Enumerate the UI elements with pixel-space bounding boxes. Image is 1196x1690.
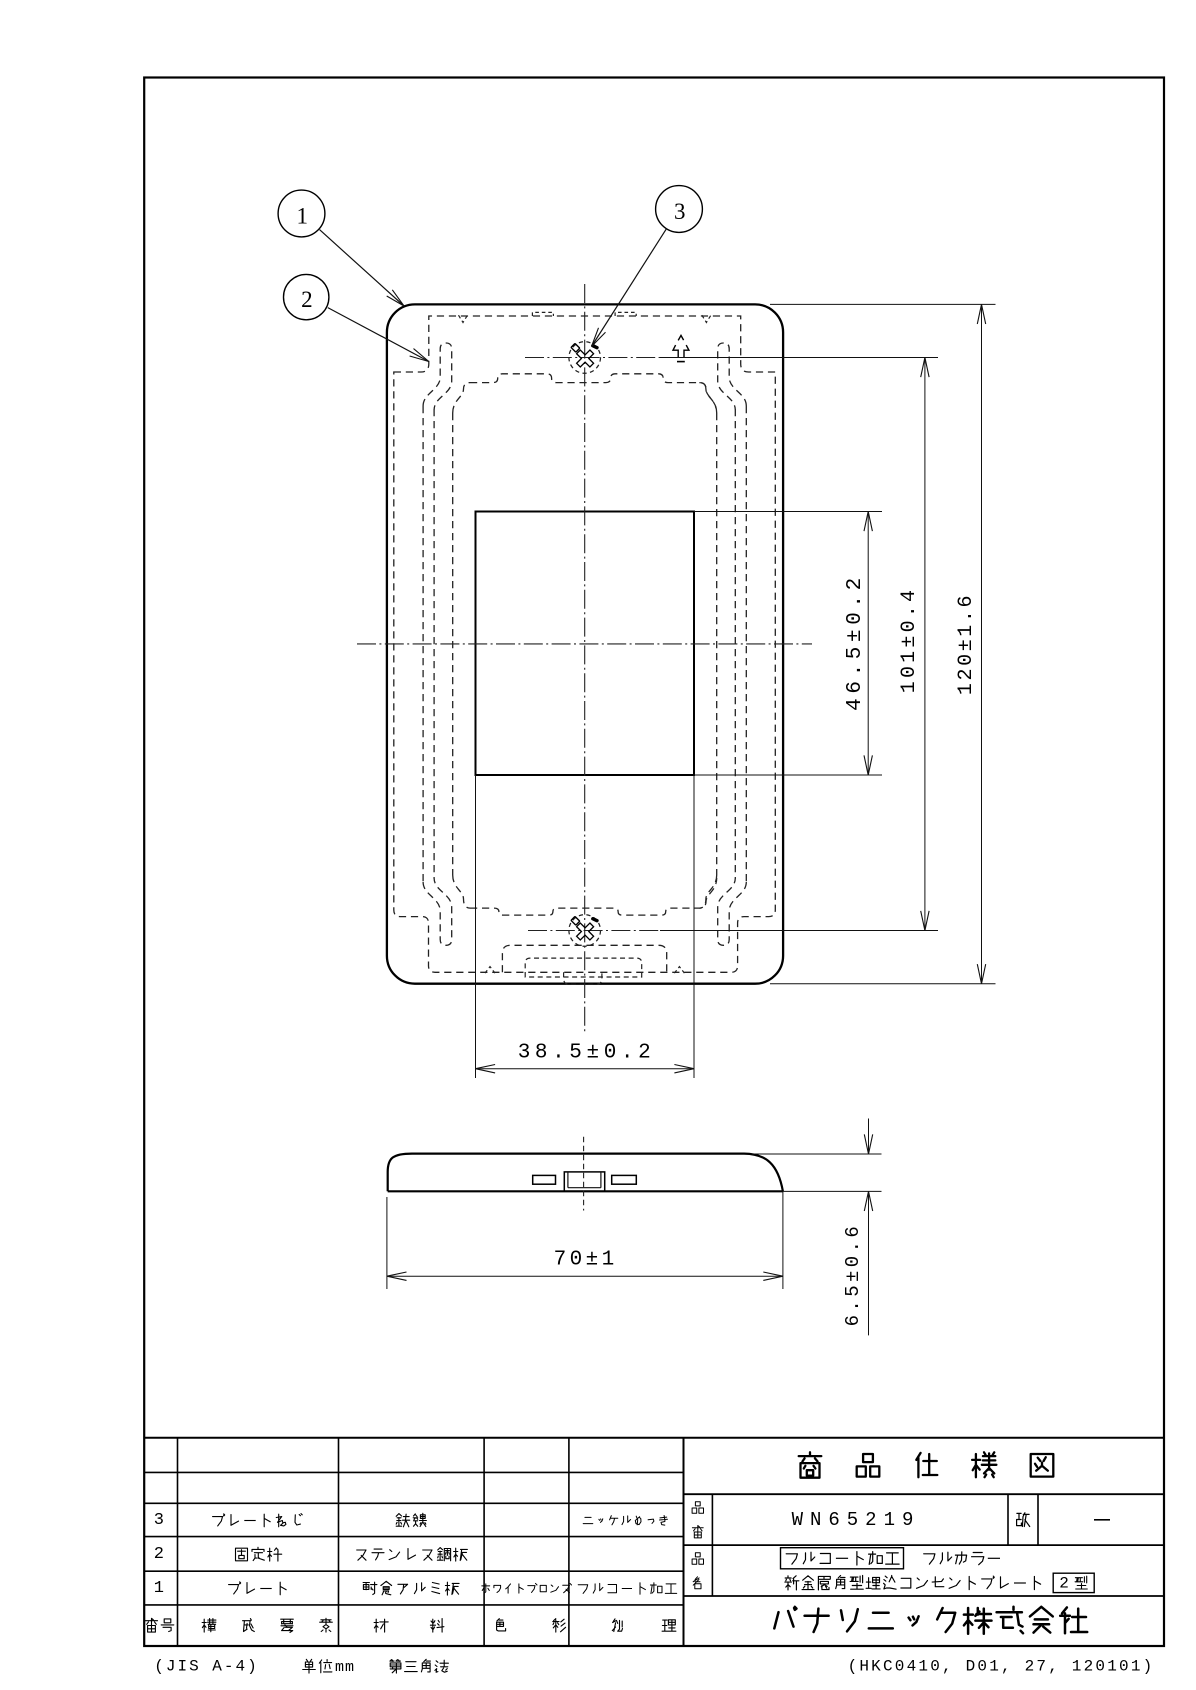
- svg-text:2: 2: [1059, 1574, 1069, 1592]
- svg-text:1: 1: [297, 204, 309, 229]
- svg-text:120±1.6: 120±1.6: [955, 593, 978, 695]
- svg-text:3: 3: [674, 199, 686, 224]
- svg-text:70±1: 70±1: [554, 1249, 618, 1272]
- svg-text:2: 2: [301, 287, 313, 312]
- svg-text:mm: mm: [335, 1659, 355, 1676]
- svg-text:101±0.4: 101±0.4: [898, 587, 921, 693]
- svg-text:(JIS A-4): (JIS A-4): [154, 1658, 258, 1676]
- svg-text:3: 3: [154, 1511, 164, 1530]
- svg-text:(HKC0410, D01, 27, 120101): (HKC0410, D01, 27, 120101): [848, 1658, 1155, 1676]
- svg-text:38.5±0.2: 38.5±0.2: [518, 1042, 656, 1065]
- svg-text:WN65219: WN65219: [792, 1509, 921, 1531]
- svg-text:1: 1: [154, 1579, 164, 1598]
- svg-text:2: 2: [154, 1545, 164, 1564]
- svg-text:46.5±0.2: 46.5±0.2: [844, 573, 867, 711]
- svg-text:6.5±0.6: 6.5±0.6: [842, 1223, 864, 1327]
